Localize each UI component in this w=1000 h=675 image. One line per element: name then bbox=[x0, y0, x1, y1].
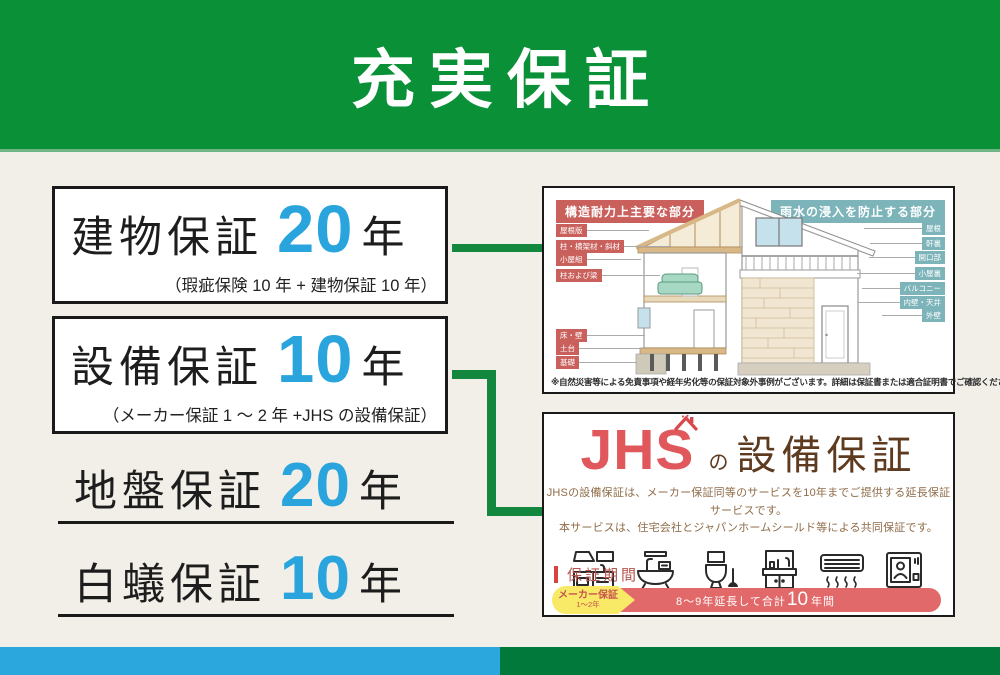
structural-label-row: 柱および梁 bbox=[556, 269, 660, 282]
equipment-warranty-label: 設備保証 bbox=[71, 346, 263, 391]
ground-warranty-years: 20 bbox=[280, 453, 351, 518]
jhs-equipment-warranty-title: 設備保証 bbox=[736, 436, 916, 476]
structural-label-row: 床・壁 bbox=[556, 329, 645, 342]
chevron-tip bbox=[618, 586, 635, 614]
jhs-description: JHSの設備保証は、メーカー保証同等のサービスを10年までご提供する延長保証サー… bbox=[544, 485, 953, 538]
warranty-timeline: 8～9年延長して合計 10 年間 メーカー保証 1～2年 bbox=[552, 586, 941, 614]
structural-label: 基礎 bbox=[556, 356, 579, 369]
termite-warranty-unit: 年 bbox=[359, 563, 402, 608]
maker-warranty-years: 1～2年 bbox=[576, 601, 599, 609]
equipment-warranty-box: 設備保証 10 年 （メーカー保証 1 ～ 2 年 +JHS の設備保証） bbox=[52, 316, 448, 434]
footer-green-bar bbox=[500, 647, 1000, 675]
rainwater-label: 外壁 bbox=[922, 309, 945, 322]
extension-suffix: 年間 bbox=[811, 590, 835, 614]
heading-accent-bar bbox=[554, 566, 558, 583]
rainwater-label: バルコニー bbox=[900, 282, 945, 295]
structural-label: 床・壁 bbox=[556, 329, 587, 342]
extension-prefix: 8～9年延長して合計 bbox=[676, 590, 786, 614]
rainwater-label-row: 軒裏 bbox=[870, 237, 945, 250]
equipment-warranty-years: 10 bbox=[277, 325, 354, 395]
structural-label: 屋根版 bbox=[556, 224, 587, 237]
rainwater-label: 小屋裏 bbox=[915, 267, 946, 280]
jhs-particle: の bbox=[708, 446, 728, 475]
equipment-warranty-unit: 年 bbox=[362, 346, 405, 391]
footer-blue-bar bbox=[0, 647, 500, 675]
maker-warranty-chevron: メーカー保証 1～2年 bbox=[552, 586, 635, 614]
rainwater-label: 内壁・天井 bbox=[900, 296, 946, 309]
warranty-period-heading: 保証期間 bbox=[554, 564, 639, 585]
ground-warranty-label: 地盤保証 bbox=[74, 470, 266, 515]
washbasin-icon bbox=[757, 549, 802, 591]
title-banner: 充実保証 bbox=[0, 0, 1000, 152]
rainwater-label-row: 屋根 bbox=[864, 222, 945, 235]
house-panel-disclaimer: ※自然災害等による免責事項や経年劣化等の保証対象外事例がございます。詳細は保証書… bbox=[551, 376, 949, 388]
air-conditioner-icon bbox=[819, 549, 865, 591]
jhs-warranty-panel: JHS の 設備保証 JHSの設備保証は、メーカー保証同等のサービスを10年まで… bbox=[542, 412, 955, 617]
jhs-house-icon bbox=[674, 414, 698, 431]
connector-equipment-to-jhs bbox=[487, 507, 544, 516]
structural-label: 柱・横架材・斜材 bbox=[556, 240, 624, 253]
structural-label-row: 柱・横架材・斜材 bbox=[556, 240, 670, 253]
infographic-canvas: 充実保証 建物保証 20 年 （瑕疵保険 10 年 + 建物保証 10 年） 設… bbox=[0, 0, 1000, 675]
jhs-logo-row: JHS の 設備保証 bbox=[544, 422, 953, 478]
rainwater-label-row: バルコニー bbox=[862, 282, 945, 295]
equipment-warranty-note: （メーカー保証 1 ～ 2 年 +JHS の設備保証） bbox=[103, 402, 437, 426]
rainwater-label: 軒裏 bbox=[922, 237, 945, 250]
page-title: 充実保証 bbox=[337, 29, 663, 121]
rainwater-label-row: 外壁 bbox=[882, 309, 945, 322]
warranty-period-label: 保証期間 bbox=[567, 564, 639, 585]
rainwater-label-row: 内壁・天井 bbox=[858, 296, 946, 309]
ground-warranty-row: 地盤保証 20 年 bbox=[58, 451, 454, 524]
bathtub-icon bbox=[633, 549, 678, 591]
termite-warranty-years: 10 bbox=[280, 546, 351, 611]
intercom-icon bbox=[882, 549, 927, 591]
connector-building-to-house bbox=[452, 244, 544, 252]
termite-warranty-label: 白蟻保証 bbox=[74, 563, 266, 608]
structural-label-row: 基礎 bbox=[556, 356, 637, 369]
connector-equipment-vertical bbox=[487, 370, 496, 516]
structural-label-row: 屋根版 bbox=[556, 224, 649, 237]
building-warranty-years: 20 bbox=[277, 195, 354, 265]
ground-warranty-unit: 年 bbox=[359, 470, 402, 515]
structural-label-row: 小屋組 bbox=[556, 253, 641, 266]
extension-total-years: 10 bbox=[787, 588, 808, 612]
structural-label: 柱および梁 bbox=[556, 269, 602, 282]
building-warranty-label: 建物保証 bbox=[71, 216, 263, 261]
house-diagram-panel: 構造耐力上主要な部分 雨水の浸入を防止する部分 bbox=[542, 186, 955, 394]
termite-warranty-row: 白蟻保証 10 年 bbox=[58, 544, 454, 617]
rainwater-label-row: 小屋裏 bbox=[857, 267, 946, 280]
jhs-logo: JHS bbox=[581, 422, 695, 479]
toilet-icon bbox=[695, 549, 740, 591]
jhs-description-line1: JHSの設備保証は、メーカー保証同等のサービスを10年までご提供する延長保証サー… bbox=[544, 485, 953, 520]
rainwater-label: 屋根 bbox=[922, 222, 945, 235]
rainwater-label: 開口部 bbox=[915, 251, 946, 264]
structural-label: 土台 bbox=[556, 342, 579, 355]
rainwater-label-row: 開口部 bbox=[869, 251, 946, 264]
house-cross-section-illustration bbox=[630, 198, 880, 376]
building-warranty-unit: 年 bbox=[362, 216, 405, 261]
building-warranty-note: （瑕疵保険 10 年 + 建物保証 10 年） bbox=[165, 272, 437, 296]
structural-label-row: 土台 bbox=[556, 342, 643, 355]
jhs-description-line2: 本サービスは、住宅会社とジャパンホームシールド等による共同保証です。 bbox=[544, 520, 953, 538]
building-warranty-box: 建物保証 20 年 （瑕疵保険 10 年 + 建物保証 10 年） bbox=[52, 186, 448, 304]
structural-label: 小屋組 bbox=[556, 253, 587, 266]
